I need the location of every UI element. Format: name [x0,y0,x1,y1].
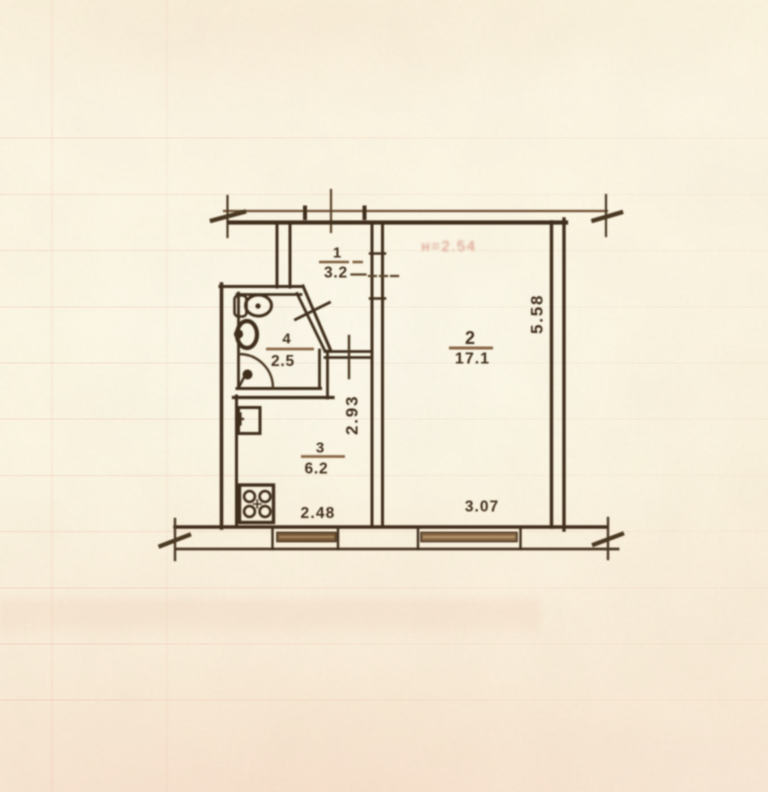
svg-text:1: 1 [333,245,341,262]
svg-text:4: 4 [282,331,291,348]
svg-text:2: 2 [465,328,475,348]
svg-text:3: 3 [316,440,324,457]
svg-text:5.58: 5.58 [528,294,547,334]
svg-text:17.1: 17.1 [455,351,490,368]
svg-text:3.2: 3.2 [324,265,348,282]
svg-text:н=2.54: н=2.54 [421,238,476,255]
svg-text:3.07: 3.07 [465,499,499,516]
svg-text:6.2: 6.2 [305,461,329,478]
svg-text:2.93: 2.93 [343,395,362,435]
svg-text:2.48: 2.48 [301,505,336,522]
svg-text:2.5: 2.5 [271,353,295,370]
